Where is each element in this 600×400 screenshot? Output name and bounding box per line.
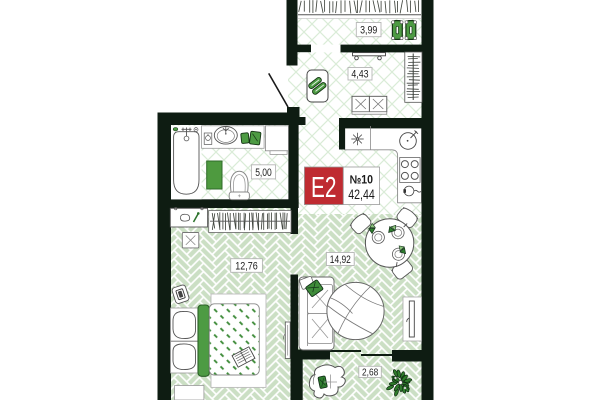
svg-text:2,68: 2,68: [362, 367, 378, 379]
svg-text:4,43: 4,43: [351, 69, 368, 81]
svg-text:E2: E2: [311, 172, 337, 204]
svg-text:5,00: 5,00: [255, 167, 272, 179]
svg-text:42,44: 42,44: [348, 187, 375, 202]
svg-text:3,99: 3,99: [360, 25, 377, 37]
svg-text:12,76: 12,76: [235, 261, 258, 273]
svg-text:№10: №10: [349, 172, 373, 186]
svg-text:14,92: 14,92: [330, 254, 351, 266]
